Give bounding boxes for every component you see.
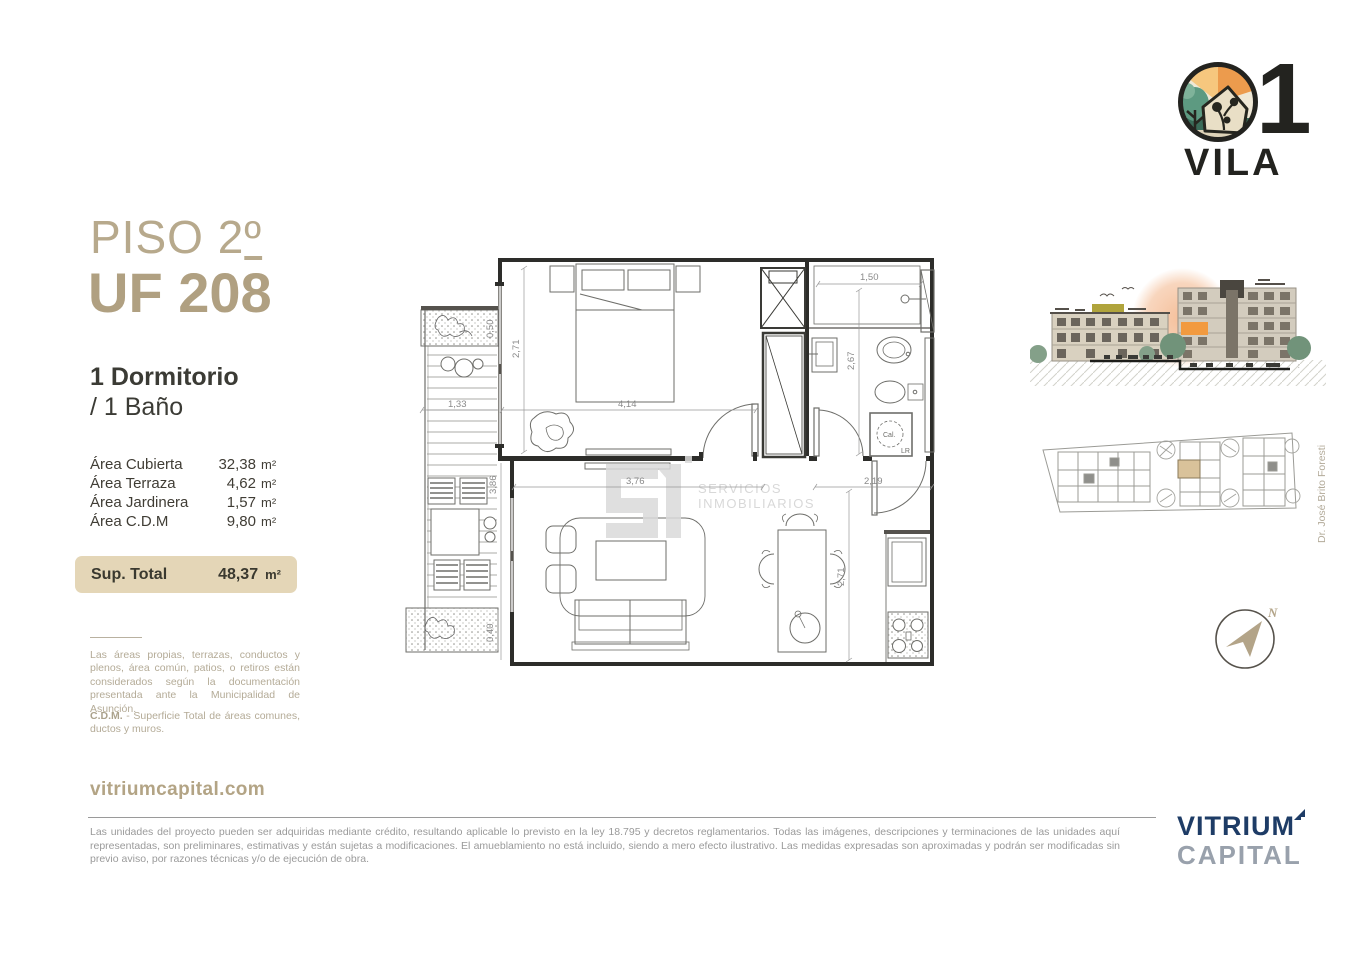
- area-row-jardinera: Área Jardinera 1,57 m²: [90, 494, 282, 513]
- dim-shower: 1,50: [860, 272, 879, 283]
- vila-logo-number: 1: [1256, 42, 1312, 157]
- area-row-cubierta: Área Cubierta 32,38 m²: [90, 456, 282, 475]
- coffee-table: [596, 541, 666, 580]
- area-label: Área Jardinera: [90, 494, 212, 511]
- total-label: Sup. Total: [91, 566, 167, 584]
- floor-plan: Cal. LR: [398, 246, 958, 686]
- dim-living-depth: 2,71: [836, 568, 847, 587]
- laundry-label: LR: [901, 448, 910, 455]
- kitchen: [884, 530, 930, 662]
- footer-divider: [88, 817, 1156, 818]
- dim-planter-top: 0,50: [485, 320, 496, 339]
- bathroom: [809, 266, 934, 456]
- vitrium-capital-logo: VITRIUM CAPITAL: [1177, 813, 1337, 868]
- balcony: [406, 306, 498, 652]
- dining-chair: [786, 514, 814, 526]
- dining-set: [759, 514, 845, 652]
- dim-bedroom-width: 4,14: [618, 399, 637, 410]
- bedroom-furniture: [530, 264, 700, 469]
- stove: [888, 612, 928, 658]
- area-value: 4,62: [212, 475, 256, 492]
- area-label: Área Cubierta: [90, 456, 212, 473]
- vitrium-wordmark: VITRIUM: [1177, 813, 1295, 840]
- website-link[interactable]: vitriumcapital.com: [90, 779, 265, 801]
- dim-bedroom-side: 2,71: [511, 340, 522, 359]
- pouf: [546, 526, 576, 553]
- building-elevation-render: :: [1030, 256, 1326, 388]
- bathrooms-label: / 1 Baño: [90, 393, 183, 422]
- floor-title: PISO 2º: [90, 210, 262, 264]
- cdm-term: C.D.M.: [90, 710, 123, 722]
- vitrium-text: VITRIUM: [1177, 811, 1295, 841]
- area-unit: m²: [256, 514, 282, 529]
- capital-wordmark: CAPITAL: [1177, 842, 1337, 868]
- vitrium-arrow-icon: [1294, 809, 1305, 820]
- area-label: Área C.D.M: [90, 513, 212, 530]
- site-key-plan: [1040, 428, 1302, 528]
- area-value: 32,38: [212, 456, 256, 473]
- bedroom-armchair: [530, 412, 573, 452]
- compass-north-label: N: [1267, 605, 1278, 620]
- vila-badge-art: [1176, 58, 1262, 146]
- bidet: [875, 381, 905, 403]
- dim-living-width: 3,76: [626, 476, 645, 487]
- area-value: 9,80: [212, 513, 256, 530]
- pouf: [546, 565, 576, 593]
- unit-location-highlight: [1178, 460, 1200, 478]
- highlighted-unit: [1181, 322, 1208, 335]
- area-unit: m²: [256, 457, 282, 472]
- total-value: 48,37: [218, 566, 258, 584]
- total-area-box: Sup. Total 48,37m²: [75, 556, 297, 593]
- ground-hatch: [1030, 360, 1326, 386]
- compass-arrow: [1226, 621, 1262, 657]
- dim-balcony-width: 1,33: [448, 399, 467, 410]
- area-label: Área Terraza: [90, 475, 212, 492]
- vila-logo-badge: [1176, 58, 1262, 146]
- unit-code: UF 208: [88, 260, 272, 325]
- heater-label: Cal.: [883, 432, 896, 439]
- area-table: Área Cubierta 32,38 m² Área Terraza 4,62…: [90, 456, 282, 532]
- area-value: 1,57: [212, 494, 256, 511]
- area-unit: m²: [256, 495, 282, 510]
- area-unit: m²: [256, 476, 282, 491]
- dining-chair: [759, 554, 774, 584]
- legal-disclaimer: Las unidades del proyecto pueden ser adq…: [90, 826, 1120, 867]
- dim-entry-width: 2,19: [864, 476, 883, 487]
- dim-balcony-length: 3,86: [488, 476, 499, 495]
- street-name-label: Dr. José Brito Foresti: [1316, 415, 1328, 543]
- note-cdm: C.D.M. - Superficie Total de áreas comun…: [90, 710, 300, 737]
- area-row-terraza: Área Terraza 4,62 m²: [90, 475, 282, 494]
- right-building: [1178, 280, 1296, 361]
- brochure-page: 1 VILA PISO 2º UF 208 1 Dormitorio / 1 B…: [0, 0, 1365, 966]
- compass-icon: N: [1205, 597, 1287, 679]
- dim-planter-bottom: 0,40: [485, 624, 496, 643]
- area-row-cdm: Área C.D.M 9,80 m²: [90, 513, 282, 532]
- watermark-line2: INMOBILIARIOS: [698, 496, 815, 511]
- toilet: [877, 337, 911, 363]
- vila-logo-name: VILA: [1184, 142, 1283, 185]
- note-general: Las áreas propias, terrazas, conductos y…: [90, 649, 300, 716]
- sofa: [572, 600, 689, 650]
- servicios-inmobiliarios-watermark: SERVICIOS INMOBILIARIOS: [606, 456, 815, 538]
- bedrooms-label: 1 Dormitorio: [90, 363, 239, 392]
- floor-title-text: PISO 2: [90, 211, 244, 263]
- dim-bath-depth: 2,67: [846, 352, 857, 371]
- closet-hall: [761, 268, 805, 328]
- birds-icon: [1100, 288, 1134, 297]
- note-divider: [90, 637, 142, 638]
- fridge: [888, 538, 926, 586]
- watermark-line1: SERVICIOS: [698, 481, 782, 496]
- walls: [498, 258, 934, 666]
- floor-title-ordinal: º: [244, 211, 262, 263]
- total-unit: m²: [265, 567, 281, 582]
- wardrobe: [763, 333, 805, 457]
